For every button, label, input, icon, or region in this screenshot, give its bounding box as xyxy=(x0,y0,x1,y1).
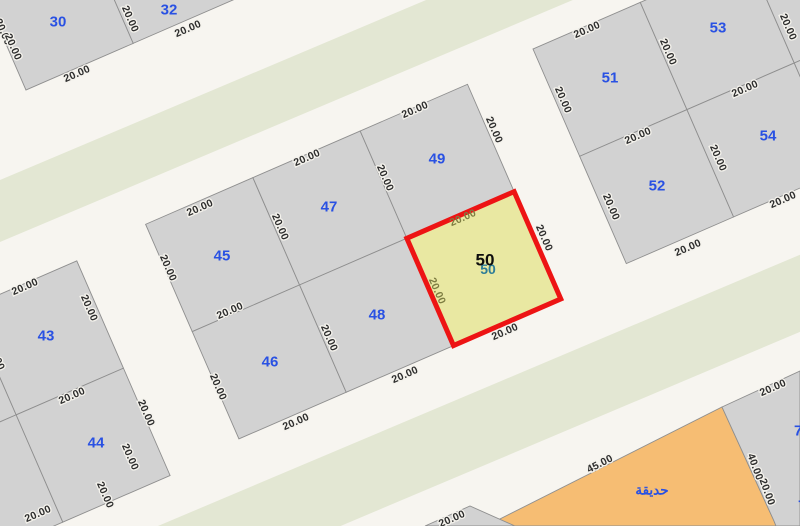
cadastral-map[interactable]: 20.0020.0020.0020.0020.0020.0020.0020.00… xyxy=(0,0,800,526)
parcel-number-47: 47 xyxy=(321,199,338,216)
map-canvas[interactable]: 20.0020.0020.0020.0020.0020.0020.0020.00… xyxy=(0,0,800,526)
parcel-number-30: 30 xyxy=(50,14,67,31)
parcel-number-53: 53 xyxy=(710,20,727,37)
parcel-number-45: 45 xyxy=(214,248,231,265)
parcel-number-51: 51 xyxy=(602,70,619,87)
parcel-number-54: 54 xyxy=(760,128,777,145)
parcel-number-32: 32 xyxy=(161,2,178,19)
parcel-number-48: 48 xyxy=(369,307,386,324)
parcel-number-49: 49 xyxy=(429,151,446,168)
parcel-number-cut: 7 xyxy=(794,423,800,440)
parcel-number-52: 52 xyxy=(649,178,666,195)
parcel-number-44: 44 xyxy=(88,435,105,452)
parcel-50-selected-label: 50 xyxy=(476,251,495,270)
parcel-number-46: 46 xyxy=(262,354,279,371)
garden-label: حديقة xyxy=(635,483,668,498)
parcel-number-43: 43 xyxy=(38,328,55,345)
